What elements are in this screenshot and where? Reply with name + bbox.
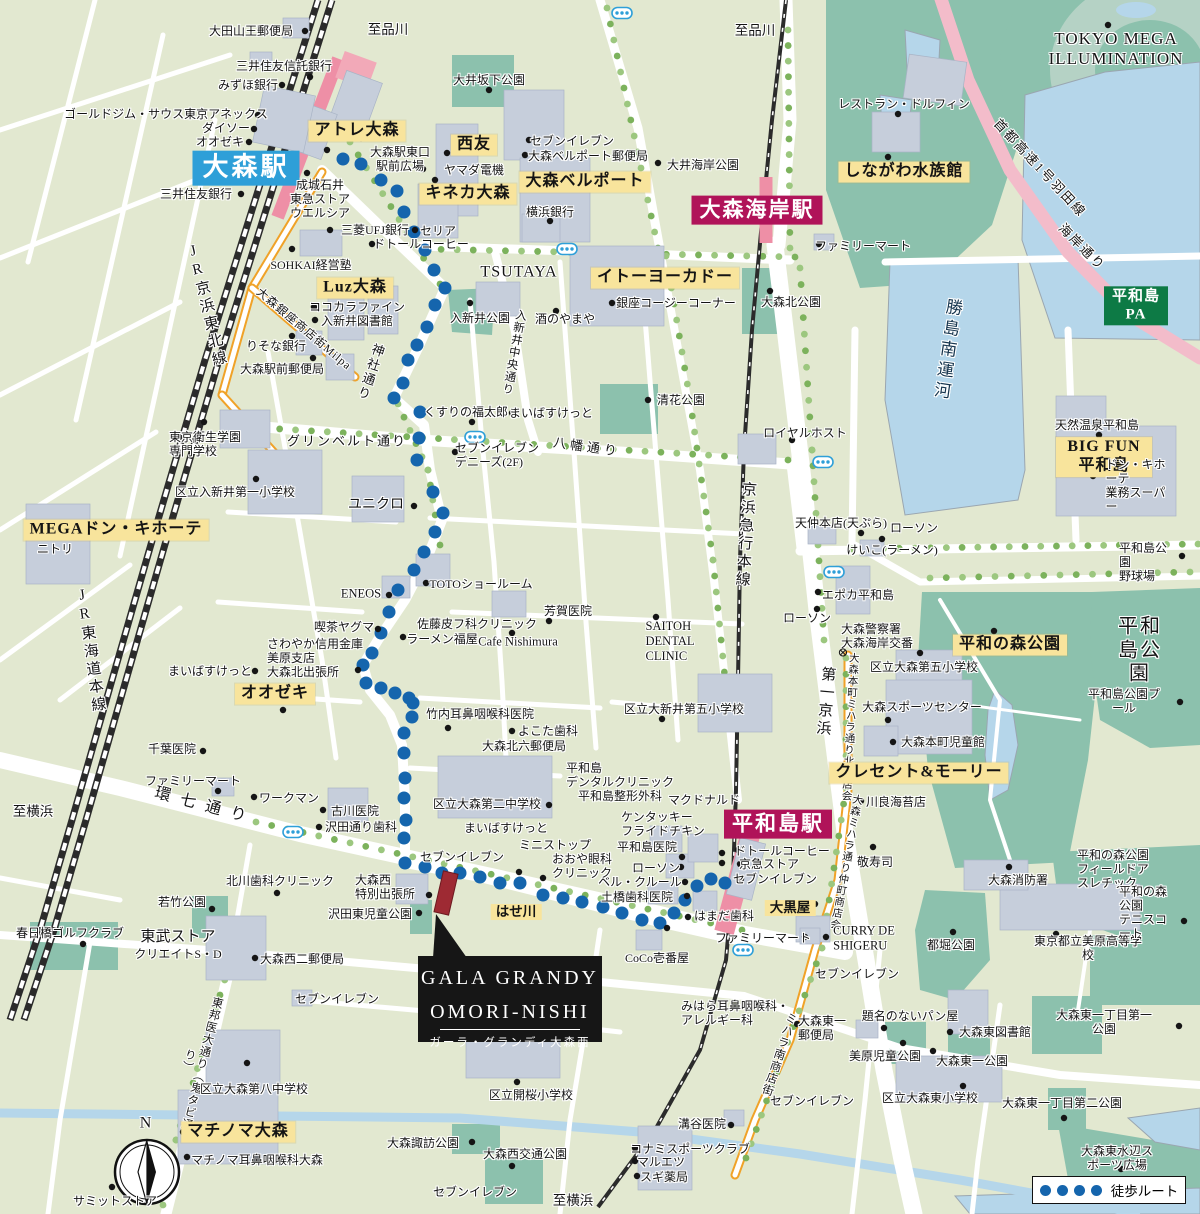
map-canvas: GALA GRANDY OMORI-NISHI ガーラ・グランディ大森西 徒歩ル… (0, 0, 1200, 1214)
highlight-label: しながわ水族館 (838, 162, 969, 183)
street-tree (1073, 571, 1080, 578)
poi-dot (719, 860, 725, 866)
walk-route-dot (668, 907, 681, 920)
poi-dot (426, 892, 432, 898)
walk-route-dot (494, 877, 507, 890)
poi-dot (516, 869, 522, 875)
street-tree (681, 365, 688, 372)
poi-label: 題名のないパン屋 (862, 1009, 959, 1023)
street-tree (378, 846, 385, 853)
walk-route-dot (355, 158, 368, 171)
street-tree (696, 461, 703, 468)
poi-dot (609, 300, 615, 306)
crossing-signal-dot (286, 830, 289, 833)
road (48, 942, 90, 1214)
walk-route-dot (411, 339, 424, 352)
poi-label: 大森北公園 (761, 295, 821, 309)
poi-label: 大森スポーツセンター (862, 700, 982, 714)
street-tree (817, 573, 824, 580)
street-tree (786, 229, 793, 236)
walk-route-dot (400, 814, 413, 827)
water (885, 258, 1025, 515)
street-tree (819, 945, 826, 952)
crossing-signal-dot (570, 247, 573, 250)
poi-dot (1061, 1115, 1067, 1121)
street-tree (943, 574, 950, 581)
poi-label: 川良海苔店 (866, 795, 926, 809)
street-tree (785, 457, 792, 464)
poi-dot (289, 246, 295, 252)
street-tree (1069, 542, 1076, 549)
poi-label: 区立大森第五小学校 (870, 660, 978, 674)
crossing-signal-dot (560, 247, 563, 250)
street-tree (550, 248, 557, 255)
building (492, 591, 526, 617)
street-tree (1008, 573, 1015, 580)
highlight-label: はせ川 (491, 904, 542, 920)
poi-label: 大森西 特別出張所 (355, 873, 415, 901)
poi-label: セブンイレブン (530, 134, 614, 148)
street-tree (806, 414, 813, 421)
building (872, 112, 920, 152)
walk-route-dot (392, 584, 405, 597)
poi-label: 大森東一丁目第一公園 (1056, 1008, 1152, 1036)
poi-label: 区立開桜小学校 (489, 1088, 573, 1102)
poi-label: 大森北六郵便局 (482, 739, 566, 753)
poi-dot (324, 147, 330, 153)
street-tree (331, 836, 338, 843)
poi-dot (885, 154, 891, 160)
poi-dot (320, 807, 326, 813)
poi-dot (509, 1163, 515, 1169)
street-tree (407, 427, 414, 434)
walk-route-dot (437, 507, 450, 520)
street-tree (684, 381, 691, 388)
poi-label: 喫茶ヤグマ (314, 620, 374, 634)
poi-dot (1105, 22, 1111, 28)
poi-label: セブンイレブン (770, 1094, 854, 1108)
crossing-signal-dot (478, 435, 481, 438)
poi-label: 平和島公園プール (1086, 687, 1162, 715)
poi-label: 平和島公園 (1110, 616, 1170, 687)
poi-label: けいこ(ラーメン) (846, 543, 938, 557)
street-tree (1037, 543, 1044, 550)
street-tree (786, 136, 793, 143)
walk-route-dot (397, 377, 410, 390)
poi-dot (1177, 699, 1183, 705)
walk-route-dot (398, 832, 411, 845)
street-tree (801, 992, 808, 999)
station-label: 平和島駅 (724, 810, 832, 839)
poi-label: 大森消防署 (988, 873, 1048, 887)
highlight-label: アトレ大森 (308, 121, 405, 142)
walk-route-dot (719, 877, 732, 890)
street-tree (763, 1097, 770, 1104)
highlight-label: MEGAドン・キホーテ (24, 520, 209, 541)
poi-label: 大森本町児童館 (901, 735, 985, 749)
poi-label: 大森東一 郵便局 (798, 1014, 846, 1042)
walk-route-dot (427, 486, 440, 499)
building (248, 450, 322, 514)
poi-label: 竹内耳鼻咽喉科医院 (426, 707, 534, 721)
poi-label: ローソン (632, 861, 680, 875)
poi-label: ヤマダ電機 (444, 163, 504, 177)
poi-dot (469, 419, 475, 425)
poi-label: CURRY DE SHIGERU (833, 923, 895, 953)
street-tree (534, 248, 541, 255)
street-tree (604, 5, 611, 12)
street-tree (679, 349, 686, 356)
street-tree (425, 467, 432, 474)
poi-dot (274, 890, 280, 896)
street-tree (355, 152, 362, 159)
poi-label: 成城石井 東急ストア ウエルシア (290, 178, 350, 220)
walk-route-dot (375, 682, 388, 695)
poi-label: 区立大森第二中学校 (433, 797, 541, 811)
poi-label: ココカラファイン (309, 300, 405, 314)
street-tree (792, 254, 799, 261)
street-tree (1022, 543, 1029, 550)
poi-label: 天仲本店(天ぷら) (795, 516, 887, 530)
poi-label: 大森西交通公園 (483, 1147, 567, 1161)
walk-route-dot (421, 321, 434, 334)
street-tree (160, 1202, 167, 1209)
street-tree (716, 621, 723, 628)
street-tree (470, 247, 477, 254)
building (688, 834, 718, 862)
poi-label: 春日橋ゴルフクラブ (16, 926, 124, 940)
poi-label: 横浜銀行 (526, 205, 574, 219)
poi-label: マクドナルド (668, 793, 740, 807)
street-tree (394, 850, 401, 857)
walk-route-dot (398, 792, 411, 805)
street-tree (626, 447, 633, 454)
street-tree (638, 165, 645, 172)
poi-dot (412, 227, 418, 233)
street-tree (1085, 542, 1092, 549)
poi-dot (445, 725, 451, 731)
street-tree (379, 190, 386, 197)
poi-dot (685, 914, 691, 920)
crossing-signal-dot (565, 247, 568, 250)
street-tree (804, 380, 811, 387)
poi-label: みはら耳鼻咽喉科・ アレルギー科 (681, 999, 789, 1027)
walk-route-legend: 徒歩ルート (1032, 1176, 1186, 1204)
street-tree (621, 85, 628, 92)
walk-route-dot (557, 892, 570, 905)
highlight-label: オオゼキ (235, 684, 315, 705)
poi-label: ENEOS (341, 587, 381, 602)
poi-label: マルエツ (637, 1155, 685, 1169)
walk-route-dot (636, 914, 649, 927)
crossing-signal-dot (291, 830, 294, 833)
poi-label: ダイソー (202, 121, 250, 135)
street-tree (644, 197, 651, 204)
station-label: 大森海岸駅 (692, 196, 823, 225)
street-tree (550, 885, 557, 892)
street-tree (698, 477, 705, 484)
poi-label: 平和島整形外科 (578, 789, 662, 803)
highlight-label: 大森ベルポート (519, 172, 650, 193)
street-tree (835, 833, 842, 840)
poi-label: ドン・キホーテ 業務スーパー (1106, 458, 1169, 515)
poi-label: 佐藤皮フ科クリニック (417, 617, 537, 631)
road (218, 602, 362, 612)
street-tree (785, 120, 792, 127)
poi-label: 芳賀医院 (544, 604, 592, 618)
poi-label: オオゼキ (196, 135, 244, 149)
poi-label: ケンタッキー フライドチキン (621, 810, 705, 838)
road (560, 262, 596, 748)
street-tree (787, 245, 794, 252)
poi-label: セブンイレブン (733, 872, 817, 886)
poi-label: レストラン・ドルフィン (838, 97, 970, 111)
poi-label: ファミリーマート (715, 931, 811, 945)
poi-label: N (140, 1115, 153, 1134)
poi-label: 北川歯科クリニック (226, 874, 334, 888)
poi-dot (664, 925, 670, 931)
route-dot-icon (1057, 1185, 1068, 1196)
poi-dot (645, 397, 651, 403)
street-tree (651, 229, 658, 236)
poi-label: セブンイレブン (295, 992, 379, 1006)
street-tree (743, 253, 750, 260)
poi-label: TOTOショールーム (429, 577, 532, 591)
poi-dot (881, 1025, 887, 1031)
poi-dot (444, 150, 450, 156)
street-tree (689, 451, 696, 458)
street-tree (1040, 572, 1047, 579)
poi-dot (416, 910, 422, 916)
street-tree (435, 435, 442, 442)
poi-dot (546, 802, 552, 808)
poi-dot (246, 139, 252, 145)
poi-label: ワークマン (259, 791, 319, 805)
street-tree (292, 426, 299, 433)
street-tree (276, 426, 283, 433)
poi-label: Cafe Nishimura (478, 635, 558, 650)
poi-dot (280, 707, 286, 713)
poi-label: ユニクロ (348, 498, 404, 515)
callout-divider (440, 1029, 580, 1030)
street-tree (486, 247, 493, 254)
poi-label: 三井住友銀行 (160, 187, 232, 201)
poi-label: 大森西二郵便局 (260, 952, 344, 966)
poi-dot (546, 618, 552, 624)
walk-route-dot (474, 871, 487, 884)
road (470, 300, 506, 758)
highlight-label: Luz大森 (317, 278, 393, 299)
poi-label: 溝谷医院 (678, 1117, 726, 1131)
street-tree (707, 541, 714, 548)
street-tree (703, 509, 710, 516)
poi-dot (304, 170, 310, 176)
street-tree (658, 449, 665, 456)
poi-dot (469, 1139, 475, 1145)
poi-label: 京急ストア (739, 857, 799, 871)
street-tree (785, 42, 792, 49)
route-dot-icon (1040, 1185, 1051, 1196)
street-tree (809, 447, 816, 454)
street-tree (727, 252, 734, 259)
property-callout: GALA GRANDY OMORI-NISHI ガーラ・グランディ大森西 (418, 956, 602, 1042)
walk-route-dot (406, 711, 419, 724)
poi-dot (109, 1184, 115, 1190)
street-tree (974, 544, 981, 551)
pond (1116, 2, 1156, 18)
street-tree (812, 494, 819, 501)
poi-label: ゴールドジム・サウス東京アネックス (64, 107, 268, 121)
poi-dot (279, 82, 285, 88)
poi-dot (467, 300, 473, 306)
direction-label: 至横浜 (13, 804, 54, 820)
street-tree (388, 203, 395, 210)
road (0, 878, 120, 900)
street-tree (719, 653, 726, 660)
walk-route-dot (399, 857, 412, 870)
street-tree (705, 525, 712, 532)
street-tree (807, 976, 814, 983)
street-tree (758, 1112, 765, 1119)
crossing-signal-dot (827, 570, 830, 573)
street-tree (801, 331, 808, 338)
street-tree (927, 575, 934, 582)
poi-label: マチノマ耳鼻咽喉科大森 (191, 1153, 323, 1167)
walk-route-dot (398, 206, 411, 219)
poi-dot (252, 668, 258, 674)
walk-route-dot (366, 647, 379, 660)
street-tree (990, 544, 997, 551)
walk-route-dot (388, 392, 401, 405)
poi-label: クリエイトS・D (134, 947, 221, 961)
poi-dot (767, 288, 773, 294)
crossing-signal-dot (741, 948, 744, 951)
poi-label: 大田山王郵便局 (209, 24, 293, 38)
crossing-signal-dot (736, 948, 739, 951)
street-tree (785, 27, 792, 34)
poi-label: エポカ平和島 (822, 588, 894, 602)
poi-label: まいばすけっと (464, 821, 548, 835)
poi-label: 大森東一丁目第二公園 (1002, 1096, 1122, 1110)
street-tree (691, 429, 698, 436)
poi-label: 大森駅東口 駅前広場 (370, 145, 430, 173)
poi-label: 大森東一公園 (936, 1054, 1008, 1068)
poi-label: ローソン (890, 521, 938, 535)
poi-label: 大井海岸公園 (667, 158, 739, 172)
poi-dot (1006, 864, 1012, 870)
poi-dot (310, 355, 316, 361)
poi-label: CoCo壱番屋 (625, 951, 689, 965)
street-tree (786, 167, 793, 174)
poi-dot (327, 227, 333, 233)
street-tree (1100, 542, 1107, 549)
street-tree (362, 843, 369, 850)
direction-label: 至品川 (735, 23, 776, 39)
crossing-signal-dot (473, 435, 476, 438)
walk-route-dot (691, 880, 704, 893)
street-tree (710, 557, 717, 564)
street-tree (695, 252, 702, 259)
poi-dot (991, 628, 997, 634)
street-tree (838, 817, 845, 824)
poi-label: セブンイレブン (420, 850, 504, 864)
poi-dot (209, 906, 215, 912)
poi-label: 区立大新井第五小学校 (624, 702, 744, 716)
poi-label: まいばすけっと (168, 664, 252, 678)
poi-dot (375, 626, 381, 632)
walk-route-dot (389, 687, 402, 700)
walk-route-dot (402, 354, 415, 367)
poi-dot (509, 728, 515, 734)
street-tree (711, 252, 718, 259)
street-tree (676, 333, 683, 340)
street-tree (660, 909, 667, 916)
street-tree (959, 574, 966, 581)
poi-dot (244, 1060, 250, 1066)
poi-label: 大森諏訪公園 (387, 1136, 459, 1150)
poi-dot (950, 929, 956, 935)
route-dot-icon (1091, 1185, 1102, 1196)
street-tree (488, 871, 495, 878)
poi-dot (423, 580, 429, 586)
street-tree (1053, 543, 1060, 550)
poi-dot (1179, 553, 1185, 559)
street-tree (776, 253, 783, 260)
street-tree (502, 247, 509, 254)
walk-route-dot (429, 526, 442, 539)
street-tree (315, 833, 322, 840)
highlight-label: 大黒屋 (765, 900, 816, 916)
poi-dot (684, 893, 690, 899)
poi-dot (251, 126, 257, 132)
park (410, 900, 432, 934)
poi-label: さわやか信用金庫 美原支店 大森北出張所 (267, 637, 363, 679)
crossing-signal-dot (816, 460, 819, 463)
walk-route-dot (514, 877, 527, 890)
highlight-label: 西友 (451, 135, 497, 156)
crossing-signal-dot (832, 570, 835, 573)
poi-label: SAITOH DENTAL CLINIC (646, 619, 695, 663)
crossing-signal-dot (826, 460, 829, 463)
street-tree (805, 397, 812, 404)
poi-label: 古川医院 (331, 804, 379, 818)
walk-route-dot (616, 907, 629, 920)
street-tree (518, 248, 525, 255)
street-tree (959, 544, 966, 551)
street-tree (673, 317, 680, 324)
street-tree (648, 213, 655, 220)
poi-label: ミニストップ (519, 838, 591, 852)
route-dot-icon (1074, 1185, 1085, 1196)
street-tree (409, 853, 416, 860)
street-tree (645, 906, 652, 913)
walk-route-dot (337, 153, 350, 166)
poi-dot (238, 191, 244, 197)
crossing-signal-dot (837, 570, 840, 573)
poi-dot (252, 955, 258, 961)
street-tree (785, 73, 792, 80)
poi-dot (719, 850, 725, 856)
poi-label: 区立大森東小学校 (882, 1091, 978, 1105)
street-tree (347, 840, 354, 847)
poi-dot (890, 739, 896, 745)
poi-dot (879, 536, 885, 542)
direction-label: 至品川 (368, 22, 409, 38)
highlight-label: 平和の森公園 (953, 635, 1067, 656)
poi-label: 天然温泉平和島 (1055, 418, 1139, 432)
road (600, 0, 660, 250)
walk-route-dot (413, 432, 426, 445)
